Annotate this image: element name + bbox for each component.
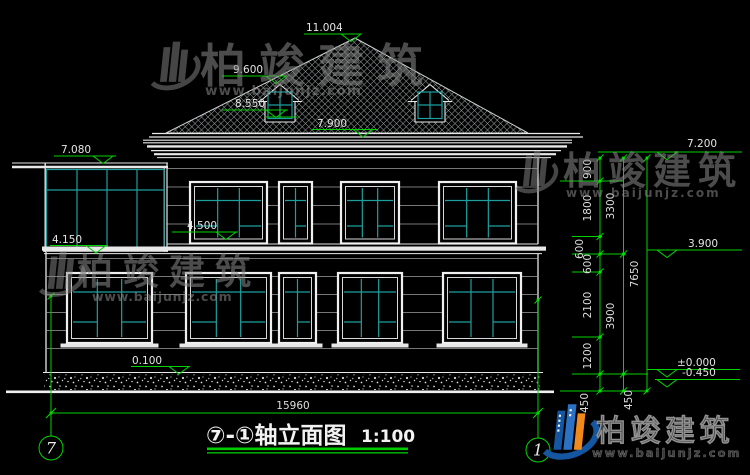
window-2f-1 — [190, 182, 267, 244]
axis-bubble-7-label: 7 — [46, 439, 57, 458]
overall-dim-text: 15960 — [276, 400, 309, 412]
dim-chain-label: 7650 — [629, 261, 641, 288]
axis-bubble-1-label: 1 — [533, 441, 543, 460]
dim-chain-label: 3900 — [605, 303, 617, 330]
plinth — [43, 373, 543, 391]
drawing-title-block: ⑦-①轴立面图 1:100 — [206, 422, 415, 454]
drawing-title: ⑦-①轴立面图 — [206, 422, 347, 449]
window-1f-3 — [273, 273, 323, 348]
window-sill — [437, 344, 528, 348]
watermark-url-text: www.baijunjz.com — [592, 446, 741, 460]
drawing-scale: 1:100 — [361, 427, 415, 447]
title-underline-thin — [207, 452, 408, 453]
level-text: 3.900 — [688, 238, 718, 250]
ground-line — [6, 391, 554, 394]
level-text: 0.100 — [132, 355, 162, 367]
window-sill — [180, 344, 278, 348]
watermark-brand-text: 柏竣建筑 — [77, 252, 261, 293]
level-text: 4.500 — [187, 220, 217, 232]
window-sill — [332, 344, 409, 348]
watermark-url-text: www.baijunjz.com — [205, 83, 362, 99]
level-text: 8.550 — [235, 98, 265, 110]
window-2f-4 — [439, 182, 516, 244]
title-underline-thick — [207, 448, 408, 451]
level-text: 7.900 — [317, 118, 347, 130]
dim-chain-label: 2100 — [582, 292, 594, 319]
dim-chain-label: 450 — [623, 390, 635, 410]
dim-chain-label: 600 — [582, 254, 594, 274]
elevation-drawing-canvas: 900180060060021001200450330039004507650 … — [0, 0, 750, 475]
level-text: -0.450 — [682, 367, 716, 379]
window-sill — [273, 344, 323, 348]
cad-elevation-screenshot: 900180060060021001200450330039004507650 … — [0, 0, 750, 475]
window-1f-4 — [332, 273, 409, 348]
window-sill — [61, 344, 159, 348]
window-2f-3 — [341, 182, 399, 244]
plinth-stipple-band — [44, 375, 540, 391]
level-text: 7.080 — [61, 144, 91, 156]
window-2f-2 — [279, 182, 312, 244]
level-text: 4.150 — [52, 234, 82, 246]
dim-chain-label: 1200 — [582, 343, 594, 370]
window-1f-5 — [437, 273, 528, 348]
level-text: 11.004 — [306, 22, 343, 34]
watermark-brand-text: 柏竣建筑 — [596, 414, 734, 449]
watermark-url-text: www.baijunjz.com — [566, 186, 721, 200]
watermark-url-text: www.baijunjz.com — [92, 289, 232, 304]
dim-chain-label: 450 — [579, 393, 591, 413]
